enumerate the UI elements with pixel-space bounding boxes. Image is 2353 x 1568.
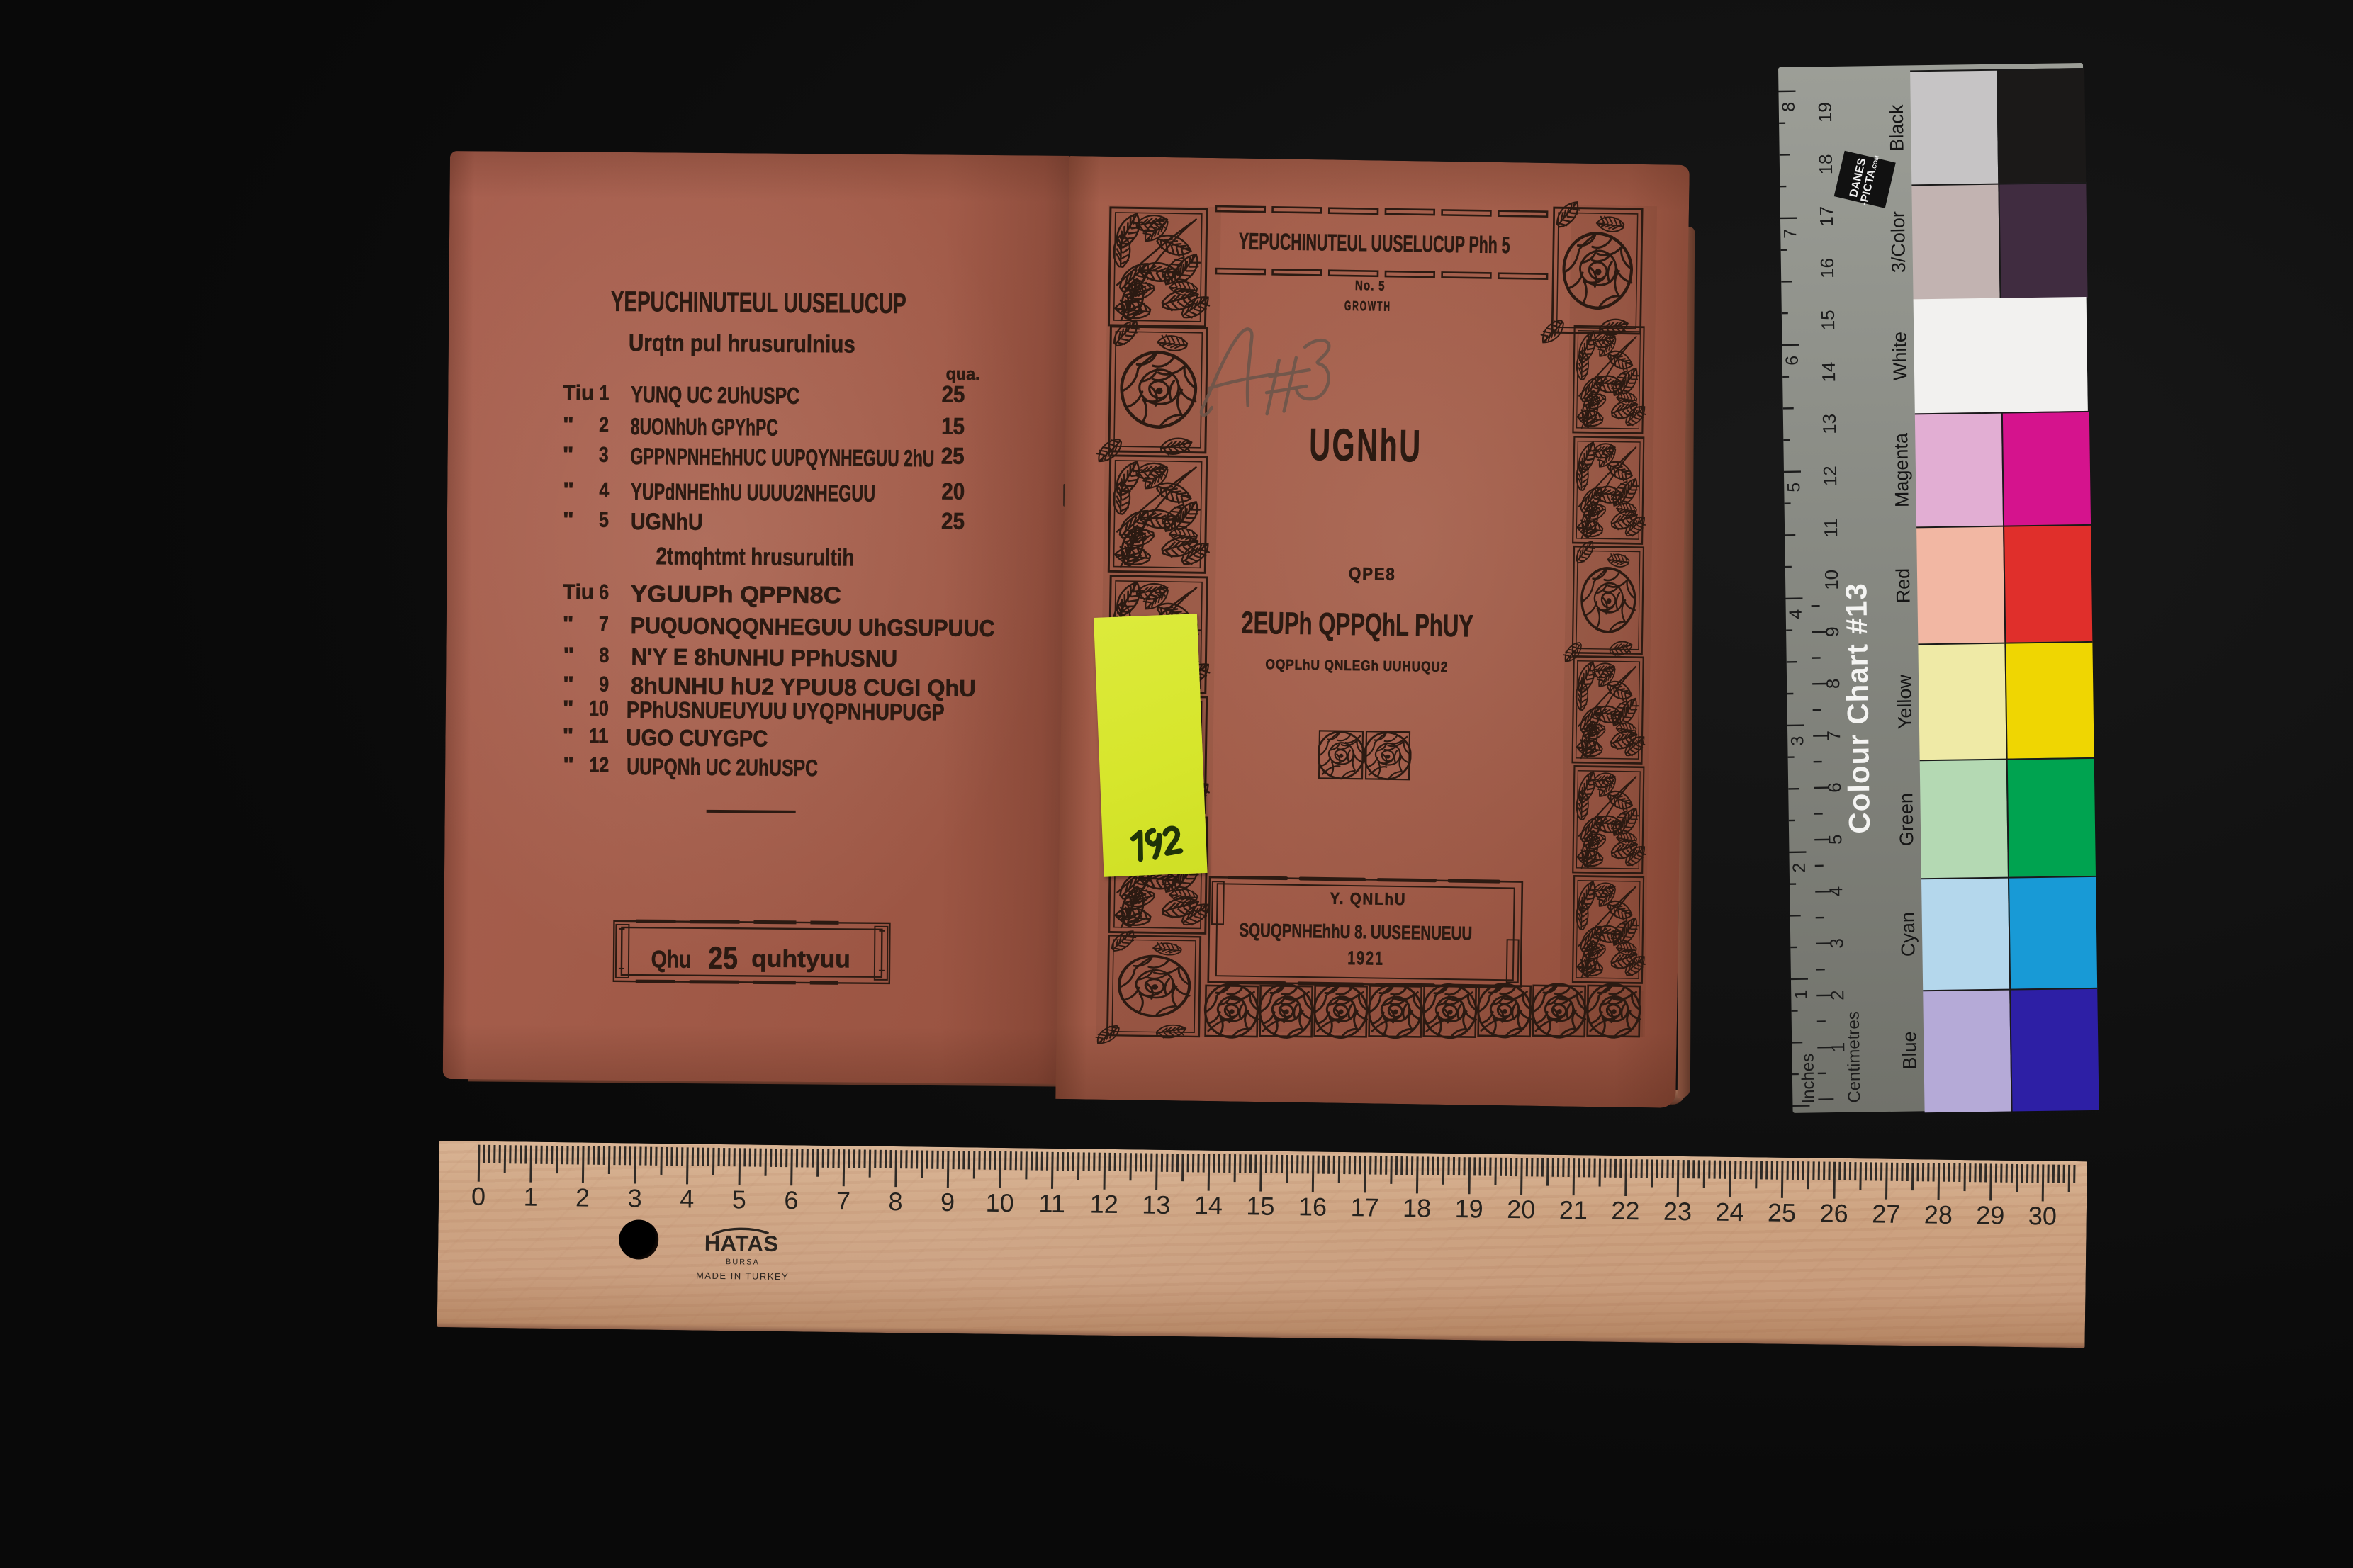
- svg-text:2: 2: [1790, 863, 1809, 873]
- svg-text:5: 5: [732, 1185, 747, 1214]
- svg-text:24: 24: [1715, 1197, 1744, 1226]
- svg-text:19: 19: [1454, 1194, 1483, 1223]
- svg-text:Centimetres: Centimetres: [1844, 1011, 1865, 1103]
- svg-text:4: 4: [1825, 886, 1846, 897]
- svg-text:7: 7: [836, 1186, 851, 1215]
- svg-text:2: 2: [575, 1183, 590, 1212]
- svg-text:3: 3: [1826, 938, 1847, 949]
- svg-text:10: 10: [1821, 570, 1842, 590]
- svg-text:6: 6: [1782, 356, 1802, 366]
- svg-text:23: 23: [1663, 1197, 1692, 1226]
- svg-text:4: 4: [680, 1184, 695, 1213]
- svg-text:20: 20: [1507, 1195, 1536, 1224]
- svg-text:12: 12: [1819, 466, 1841, 486]
- svg-text:4: 4: [1786, 609, 1806, 619]
- svg-text:17: 17: [1816, 206, 1837, 227]
- svg-text:17: 17: [1350, 1192, 1379, 1222]
- svg-text:9: 9: [940, 1188, 955, 1217]
- svg-text:28: 28: [1924, 1200, 1953, 1229]
- svg-text:13: 13: [1819, 414, 1840, 434]
- svg-text:22: 22: [1611, 1196, 1640, 1226]
- svg-text:1: 1: [523, 1182, 538, 1211]
- svg-text:MADE IN TURKEY: MADE IN TURKEY: [696, 1270, 789, 1282]
- svg-text:27: 27: [1872, 1199, 1901, 1229]
- svg-text:9: 9: [1821, 626, 1843, 637]
- svg-text:18: 18: [1815, 154, 1836, 174]
- svg-text:3: 3: [1787, 736, 1807, 746]
- svg-text:5: 5: [1824, 834, 1846, 845]
- svg-text:16: 16: [1816, 258, 1838, 278]
- svg-text:BURSA: BURSA: [726, 1258, 760, 1267]
- svg-text:5: 5: [1784, 483, 1804, 492]
- svg-text:14: 14: [1194, 1190, 1223, 1220]
- svg-text:11: 11: [1038, 1189, 1065, 1218]
- svg-text:10: 10: [985, 1188, 1014, 1218]
- svg-text:26: 26: [1819, 1198, 1848, 1228]
- svg-text:6: 6: [1824, 782, 1845, 793]
- svg-text:11: 11: [1820, 518, 1841, 537]
- svg-text:25: 25: [1768, 1198, 1797, 1228]
- svg-text:16: 16: [1298, 1192, 1327, 1222]
- svg-text:8: 8: [888, 1187, 903, 1216]
- svg-text:14: 14: [1818, 361, 1839, 382]
- svg-text:7: 7: [1780, 229, 1800, 239]
- svg-text:1: 1: [1791, 990, 1811, 1000]
- svg-text:18: 18: [1403, 1193, 1432, 1223]
- svg-text:3: 3: [627, 1183, 642, 1212]
- svg-text:29: 29: [1976, 1200, 2005, 1230]
- svg-text:12: 12: [1089, 1190, 1118, 1219]
- svg-text:2: 2: [1826, 990, 1848, 1000]
- svg-text:30: 30: [2028, 1201, 2057, 1231]
- svg-text:Inches: Inches: [1798, 1054, 1818, 1104]
- svg-text:7: 7: [1823, 731, 1844, 741]
- svg-text:21: 21: [1559, 1195, 1588, 1225]
- svg-text:13: 13: [1142, 1190, 1171, 1219]
- svg-text:8: 8: [1822, 678, 1843, 689]
- svg-text:0: 0: [471, 1182, 486, 1211]
- svg-text:8: 8: [1779, 102, 1799, 112]
- svg-text:6: 6: [784, 1185, 799, 1214]
- svg-text:19: 19: [1814, 102, 1836, 123]
- svg-text:15: 15: [1246, 1191, 1275, 1221]
- svg-text:15: 15: [1817, 310, 1838, 330]
